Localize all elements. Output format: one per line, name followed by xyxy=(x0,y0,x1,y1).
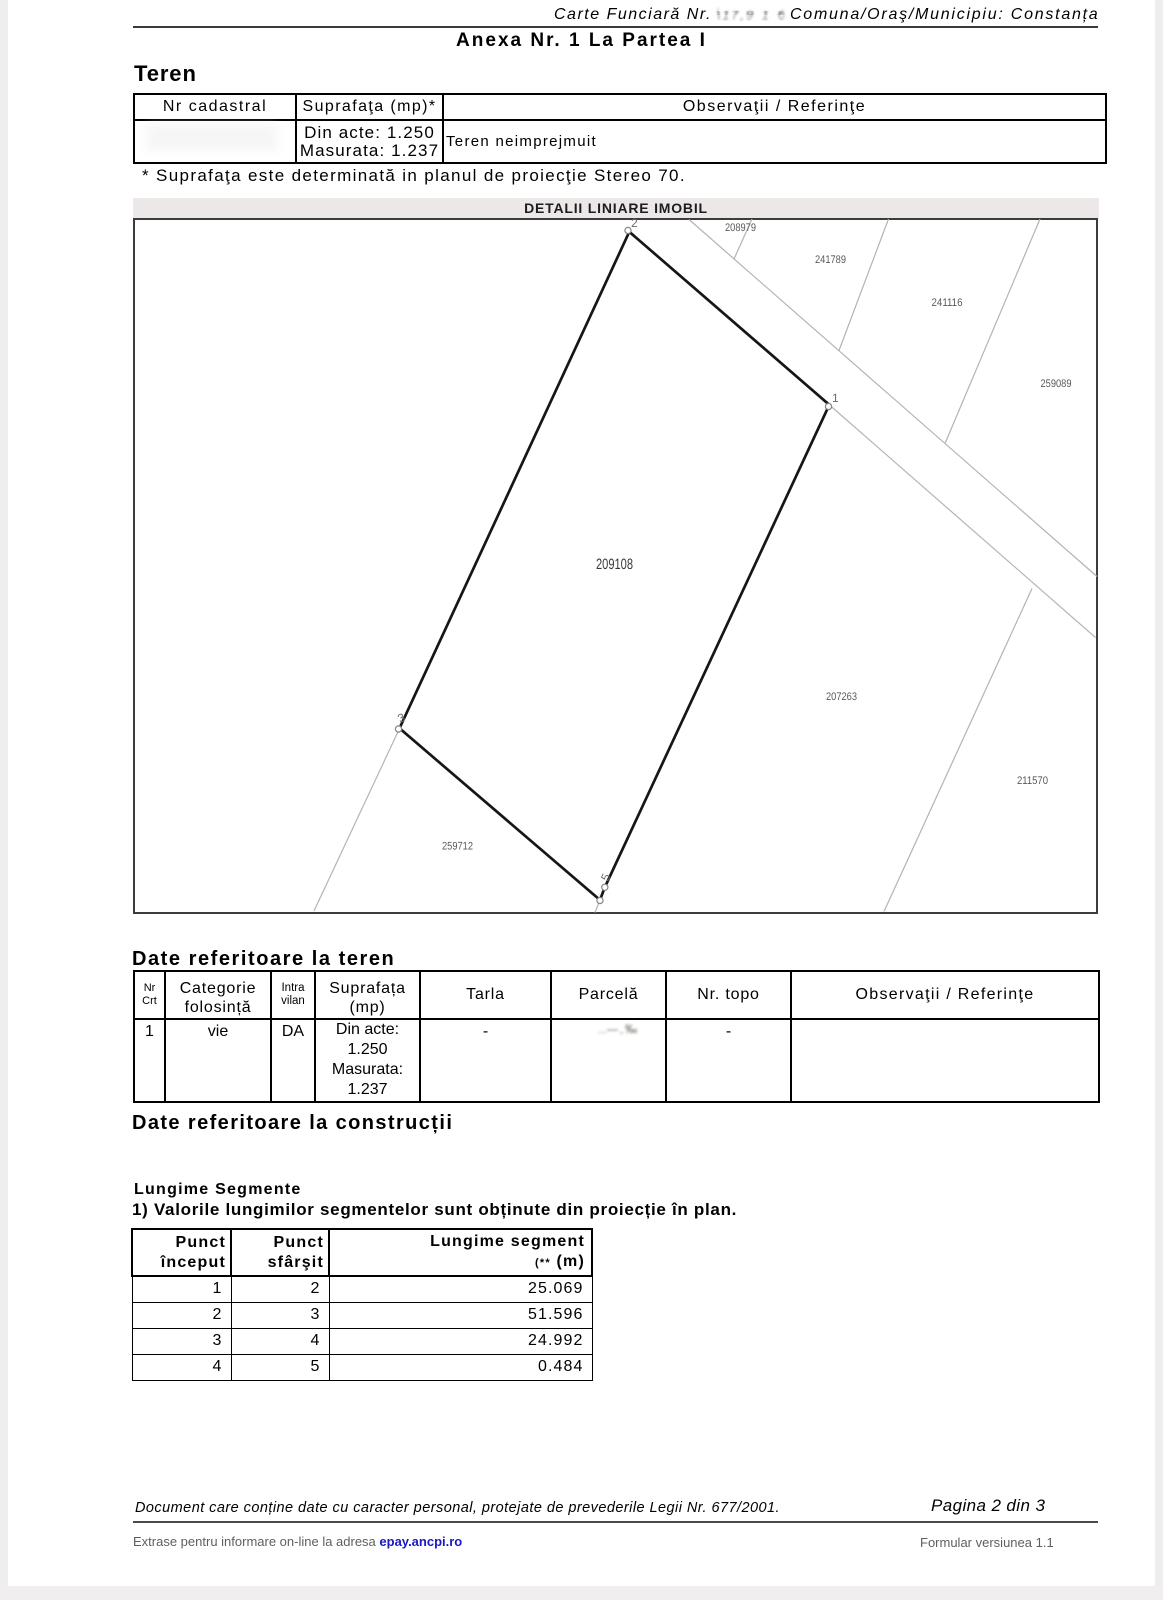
svg-text:1: 1 xyxy=(832,391,839,405)
svg-text:259089: 259089 xyxy=(1041,378,1072,390)
svg-text:211570: 211570 xyxy=(1017,775,1048,787)
svg-text:241116: 241116 xyxy=(932,297,963,309)
svg-text:241789: 241789 xyxy=(815,254,846,266)
svg-text:2: 2 xyxy=(631,218,638,230)
svg-text:207263: 207263 xyxy=(826,691,857,703)
svg-text:259712: 259712 xyxy=(442,841,473,853)
svg-text:208979: 208979 xyxy=(725,222,756,234)
svg-text:209108: 209108 xyxy=(596,556,633,573)
